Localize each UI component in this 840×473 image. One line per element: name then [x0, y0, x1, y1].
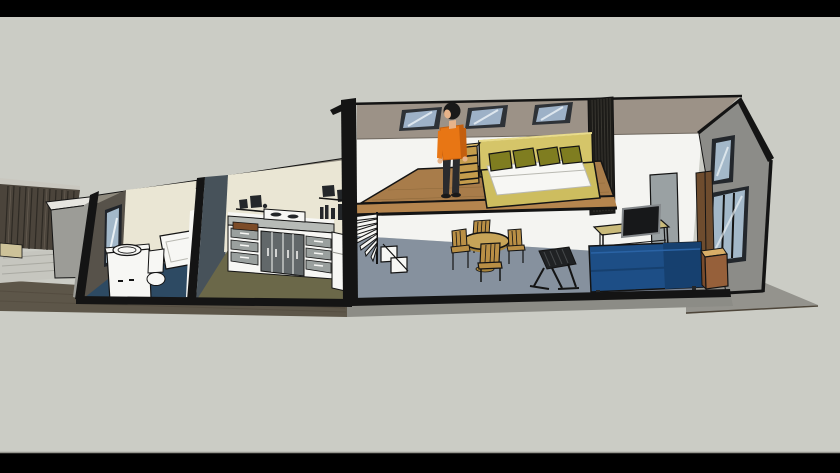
monitor [622, 205, 660, 237]
gable-upper-window [710, 135, 735, 185]
sink-basin [113, 245, 141, 256]
pillow-4 [560, 146, 582, 164]
model-viewport[interactable] [0, 0, 840, 473]
gable-base-edge [726, 291, 763, 293]
cutaway-house-scene [0, 0, 840, 473]
shelf-item-2 [250, 195, 262, 208]
skylight-1 [399, 107, 442, 131]
upper-shelf-item-1 [322, 185, 335, 197]
person-leg-right [452, 157, 460, 193]
chair-backrest [508, 229, 522, 247]
vanity-cabinet [107, 249, 151, 301]
toilet [147, 249, 165, 286]
person-shoe-left [441, 194, 451, 199]
chair-seat [478, 262, 502, 269]
patio-ledge [0, 243, 22, 258]
pillow-1 [489, 151, 512, 171]
shelf-item-3 [263, 204, 267, 208]
stair-step-lower [391, 257, 407, 273]
living-wing [330, 95, 774, 306]
person-shoe-right [451, 193, 461, 198]
cube-front [705, 254, 728, 289]
cutting-board [233, 222, 258, 231]
double-bed [479, 133, 600, 208]
toilet-tank [148, 249, 164, 273]
person-hand-right [462, 156, 467, 161]
person-hand-left [437, 158, 442, 163]
shelf-item-1 [239, 199, 248, 209]
storage-cube [701, 248, 728, 289]
toilet-bowl [147, 273, 165, 286]
vanity-sink [105, 244, 151, 301]
cooktop-burner-2 [288, 215, 299, 219]
kitchen-counter [228, 204, 344, 279]
pillow-3 [537, 147, 560, 166]
skylight-2 [465, 105, 508, 129]
person-neck [449, 120, 456, 129]
chair-seat [451, 245, 470, 253]
chair-seat [507, 245, 525, 251]
section-cut-post [341, 98, 358, 303]
pillow-2 [513, 148, 536, 168]
skylight-3 [532, 102, 573, 125]
cooktop-burner-1 [271, 213, 282, 217]
